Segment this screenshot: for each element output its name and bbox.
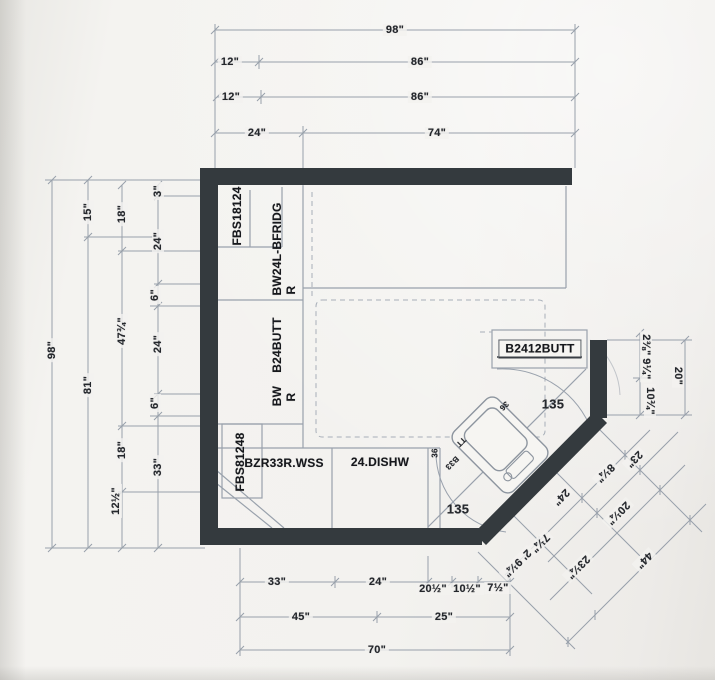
dim-10-5: 10½" [450,583,484,595]
dim-6-a: 6" [149,286,161,304]
dim-81: 81" [82,373,94,397]
plan-linework [0,0,715,680]
cab-bw: BW [270,386,284,406]
dim-6-b: 6" [149,394,161,412]
dim-10-75: 10¾" [644,384,656,418]
mark-36-filler: 36 [431,448,440,458]
dim-24-b: 24" [152,332,164,356]
cab-fbs18124: FBS18124 [230,187,244,246]
dim-24-row4: 24" [245,127,269,139]
cab-hinge-r-1: R [284,286,298,295]
cab-bw24l-bfridg: BW24L-BFRIDG [270,202,284,295]
dim-86-row2: 86" [408,56,432,68]
dim-9-25: 9¼" [640,355,652,382]
cab-bzr33r-wss: BZR33R.WSS [244,456,323,470]
dim-24-bot: 24" [366,576,390,588]
dim-24-a: 24" [152,229,164,253]
dim-86-row3: 86" [408,91,432,103]
dim-45: 45" [289,611,313,623]
dim-33-bot: 33" [265,576,289,588]
dim-70: 70" [365,644,389,656]
dim-3: 3" [152,182,164,200]
dim-20: 20" [672,364,684,388]
cab-b2412butt: B2412BUTT [498,340,581,359]
dim-18-b: 18" [116,438,128,462]
dim-12-row2: 12" [218,56,242,68]
dim-33-left: 33" [152,455,164,479]
dim-25: 25" [432,611,456,623]
cab-hinge-r-2: R [284,393,298,402]
angle-135-lower: 135 [447,502,470,517]
dim-12-row3: 12" [219,91,243,103]
dim-20-5: 20½" [416,583,450,595]
dashed-outlines [312,192,545,437]
dim-15: 15" [82,200,94,224]
dim-7-5: 7½" [484,582,511,594]
dim-47-75: 47¾" [116,314,128,348]
dim-12-5: 12½" [110,484,122,518]
dim-98-top: 98" [383,24,407,36]
cab-b24butt: B24BUTT [270,317,284,372]
dim-18-a: 18" [116,202,128,226]
cab-24-dishw: 24.DISHW [351,455,409,469]
floor-plan-sheet: 98"12"86"12"86"24"74"98"15"81"18"47¾"18"… [0,0,715,680]
angle-135-upper: 135 [542,397,565,412]
dim-74-row4: 74" [425,127,449,139]
dim-98-left: 98" [46,338,58,362]
